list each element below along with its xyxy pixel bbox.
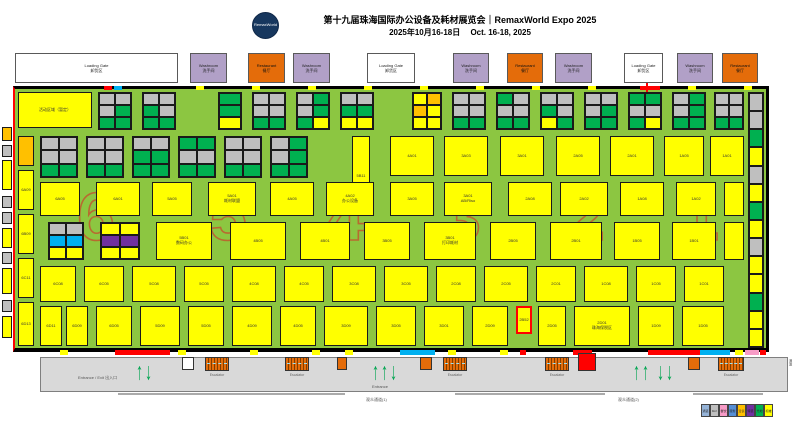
booth [724,182,744,216]
booth: 6B09 [18,214,34,254]
booth-cluster [270,136,308,178]
booth-cell [453,93,469,105]
outside-booth [2,228,12,248]
booth-cell [313,93,329,105]
booth-cell [271,150,289,163]
booth-cell [197,150,215,163]
legend-swatch: 餐饮 [719,404,728,417]
walkway-line [693,393,763,395]
booth-cell [101,235,120,247]
facility-gate: Loading Gate 卸货区 [367,53,415,83]
booth-cluster [584,92,618,130]
escalator [718,357,744,371]
facility-wash: Washroom 洗手间 [555,53,592,83]
booth-cell [715,117,729,129]
booth-cell [601,117,617,129]
booth: 3D09 [324,306,368,346]
booth-cell [87,137,105,150]
escalator-label: Escalator [537,373,577,377]
outside-booth [2,316,12,338]
booth: 1A01 [710,136,744,176]
booth: 3A03 [444,136,488,176]
entrance-arrow-u: ↑ [372,359,379,383]
booth-cell [49,235,66,247]
walkway-line [455,393,605,395]
entrance-arrow-u: ↑ [136,359,143,383]
booth-cell [749,93,763,111]
booth-cell [243,137,261,150]
booth: 6C05 [84,266,124,302]
booth-cell [41,150,59,163]
booth: 6A01 [96,182,140,216]
wall-segment [745,350,759,355]
booth-cell [413,105,427,117]
expo-logo: RemaxWorld [252,12,279,39]
booth: 1D05 [682,306,724,346]
booth-cell [87,150,105,163]
outside-booth [2,300,12,312]
legend-swatch: 光地 [755,404,764,417]
booth: 6A05 [40,182,80,216]
booth-cell [749,293,763,311]
wall-segment [700,350,730,355]
booth-cell [99,105,115,117]
booth-cell [645,105,661,117]
booth-cell [357,93,373,105]
booth: 2B01 [550,222,602,260]
booth-cell [151,150,169,163]
booth-cell [729,105,743,117]
booth-cell [197,164,215,177]
wall-segment [532,86,540,90]
entrance-arrow-d: ↓ [145,359,152,383]
booth-cell [159,105,175,117]
facility-rest: Restaurant 餐厅 [722,53,758,83]
booth-cluster [714,92,744,130]
booth-cell [341,117,357,129]
booth-cell [557,93,573,105]
wall-segment [448,350,456,355]
booth: 6D09 [66,306,88,346]
booth-cell [66,235,83,247]
booth: 4C08 [232,266,276,302]
booth: 4B01 [300,222,350,260]
entrance-arrow-d: ↓ [657,359,664,383]
booth: 2A08 [508,182,552,216]
booth-cell [629,117,645,129]
booth-cluster [340,92,374,130]
floorplan-canvas: RemaxWorld 第十九届珠海国际办公设备及耗材展览会｜RemaxWorld… [0,0,800,435]
booth-cell [297,117,313,129]
wall-segment [178,350,186,355]
booth-cluster [496,92,530,130]
booth-cell [143,105,159,117]
booth: 活动区域（暂定） [18,92,92,128]
booth: 4B05 [230,222,286,260]
service-box [337,357,347,370]
booth: 3B05 [364,222,410,260]
booth-cell [219,105,241,117]
booth: 2A01 [610,136,654,176]
facility-rest: Restaurant 餐厅 [248,53,285,83]
wall-segment [500,350,508,355]
facility-wash: Washroom 洗手间 [453,53,489,83]
booth: 3A01 AB/Riso [444,182,492,216]
wall-segment [420,86,428,90]
booth-cell [225,150,243,163]
booth-cell [427,93,441,105]
booth: 4A02 办公设备 [326,182,374,216]
booth-cell [413,93,427,105]
booth-cell [673,117,689,129]
outside-booth [2,145,12,157]
booth-cell [541,93,557,105]
booth-cell [749,220,763,238]
service-box-white [182,357,194,370]
booth: 2D09 [472,306,508,346]
booth-cell [49,247,66,259]
booth-cell [115,93,131,105]
entrance-label: Entrance [372,384,388,389]
booth-cell [557,117,573,129]
booth: 2D05 [538,306,566,346]
booth-cell [133,150,151,163]
booth: 6C08 [40,266,76,302]
outside-booth [2,212,12,224]
booth-cell [179,164,197,177]
service-box [688,357,700,370]
booth: 3A01 [500,136,544,176]
booth: 3C08 [332,266,376,302]
booth-cell [133,164,151,177]
booth-cell [271,164,289,177]
booth-cell [269,93,285,105]
wall-segment [735,350,743,355]
side-passage-label: 通道 [789,359,794,366]
booth-cluster [98,92,132,130]
escalator [545,357,569,371]
booth-cluster [48,222,84,260]
booth: 1D09 [638,306,674,346]
entrance-arrow-u: ↑ [633,359,640,383]
booth: 4A01 [390,136,434,176]
wall-segment [476,86,484,90]
booth-cluster [224,136,262,178]
wall-segment [252,86,260,90]
booth-cell [749,129,763,147]
booth-cell [513,93,529,105]
booth-cell [341,93,357,105]
booth: 5A05 [152,182,192,216]
booth: 2C08 [436,266,476,302]
wall-segment [688,86,696,90]
booth-cell [689,93,705,105]
booth-cell [297,93,313,105]
booth-cell [427,105,441,117]
booth-cell [271,137,289,150]
booth-cell [749,166,763,184]
booth: 5C05 [184,266,224,302]
booth-cell [159,93,175,105]
booth: 4D09 [232,306,272,346]
escalator-label: Escalator [197,373,237,377]
outside-booth [2,160,12,190]
booth-cell [629,93,645,105]
escalator [285,357,309,371]
booth-cell [629,105,645,117]
booth: 3C05 [384,266,428,302]
booth-cell [469,93,485,105]
booth-cell [313,117,329,129]
booth-cell [557,105,573,117]
passage1-label: 观众通道(1) [366,397,387,403]
booth-cell [179,137,197,150]
concourse [40,357,788,392]
booth-cell [749,111,763,129]
booth: 5D09 [140,306,180,346]
booth-cell [115,105,131,117]
legend-swatch: 特装 [746,404,755,417]
booth: 2A02 [560,182,608,216]
booth-cell [99,93,115,105]
wall-segment [115,350,170,355]
booth: 1A05 [664,136,704,176]
facility-gate: Loading Gate 卸货区 [624,53,663,83]
wall-segment [104,86,112,90]
booth-cell [673,105,689,117]
escalator-label: Escalator [710,373,752,377]
booth-cell [497,105,513,117]
booth: 2D01 珠海保税区 [574,306,630,346]
booth-cell [133,137,151,150]
booth [724,222,744,260]
booth-cell [105,137,123,150]
booth-cluster [100,222,140,260]
entrance-arrow-u: ↑ [381,359,388,383]
expo-title: 第十九届珠海国际办公设备及耗材展览会｜RemaxWorld Expo 2025 [285,13,635,26]
booth-cell [749,311,763,329]
wall-segment [312,350,320,355]
booth: 1B01 [672,222,716,260]
booth: 1C08 [584,266,628,302]
booth-cell [59,150,77,163]
booth-cluster [412,92,442,130]
booth: 6D05 [96,306,132,346]
escalator-label: Escalator [277,373,317,377]
booth-cluster [296,92,330,130]
booth: 6D13 [18,302,34,346]
booth-cell [179,150,197,163]
booth-cell [413,117,427,129]
facility-wash: Washroom 洗手间 [190,53,227,83]
booth-cell [497,117,513,129]
booth-cluster [40,136,78,178]
booth-cell [225,137,243,150]
wall-segment [744,86,752,90]
booth-cell [585,105,601,117]
booth-cell [151,164,169,177]
booth: 2A05 [556,136,600,176]
booth-cell [101,247,120,259]
booth-cluster [748,92,764,348]
booth-cell [269,105,285,117]
booth-cell [341,105,357,117]
booth-cluster [178,136,216,178]
facility-wash: Washroom 洗手间 [293,53,330,83]
booth-cell [49,223,66,235]
booth-cell [357,105,373,117]
walkway-line [118,393,345,395]
wall-segment [760,350,766,355]
legend-swatch: 标摊 [764,404,773,417]
booth: 2C01 [536,266,576,302]
escalator-label: Escalator [435,373,475,377]
outside-booth [2,196,12,208]
escalator [443,357,467,371]
booth-cell [749,184,763,202]
booth-cluster [218,92,242,130]
booth-cell [120,247,139,259]
passage2-label: 观众通道(2) [618,397,639,403]
booth-cell [66,247,83,259]
booth-cell [497,93,513,105]
booth: 5D05 [188,306,224,346]
booth-cell [159,117,175,129]
booth-cell [585,93,601,105]
booth-cell [729,93,743,105]
booth-cell [749,329,763,347]
wall-segment [345,350,353,355]
entrance-exit-label: Entrance / Exit 出入口 [78,375,117,381]
booth: 5C08 [132,266,176,302]
booth-cell [105,164,123,177]
booth-cluster [86,136,124,178]
booth-cell [41,164,59,177]
booth-cluster [628,92,662,130]
booth-cell [749,256,763,274]
booth-cell [219,117,241,129]
booth-cell [689,105,705,117]
booth-cell [673,93,689,105]
wall-segment [308,86,316,90]
booth-cell [513,117,529,129]
booth-cell [269,117,285,129]
booth-cell [99,117,115,129]
booth-cell [453,117,469,129]
booth-cell [601,105,617,117]
booth-cell [729,117,743,129]
entrance-arrow-d: ↓ [666,359,673,383]
booth-cluster [540,92,574,130]
booth-cell [151,137,169,150]
booth-cell [143,117,159,129]
outside-booth [2,268,12,294]
entrance-arrow-u: ↑ [642,359,649,383]
booth-cell [541,117,557,129]
booth-cluster [132,136,170,178]
booth-cell [749,274,763,292]
outside-booth [2,252,12,264]
booth [18,136,34,166]
booth: 1C01 [684,266,724,302]
wall-segment [60,350,68,355]
booth-cell [105,150,123,163]
booth-cell [66,223,83,235]
booth-cell [601,93,617,105]
booth: 3A05 [390,182,434,216]
wall-segment [640,86,660,90]
legend-swatch: 洽谈 [737,404,746,417]
booth-cell [243,164,261,177]
booth-cell [253,93,269,105]
service-box [420,357,432,370]
booth: 1A02 [676,182,716,216]
booth-cell [689,117,705,129]
booth: 3B01 打印耗材 [424,222,476,260]
booth: 4D05 [280,306,316,346]
booth: 1B05 [614,222,660,260]
wall-segment [400,350,435,355]
booth-cell [749,238,763,256]
booth-cell [469,105,485,117]
booth-cell [427,117,441,129]
booth: 1C05 [636,266,676,302]
booth-cluster [672,92,706,130]
booth: 3D05 [376,306,416,346]
booth-cell [513,105,529,117]
booth-cell [541,105,557,117]
booth-cluster [252,92,286,130]
booth: 5B01 数码办公 [156,222,212,260]
booth-cell [749,147,763,165]
wall-segment [196,86,204,90]
booth-cell [120,235,139,247]
booth-cell [453,105,469,117]
facility-rest: Restaurant 餐厅 [507,53,543,83]
booth-cell [253,117,269,129]
booth-cell [289,150,307,163]
booth: 2B05 [490,222,536,260]
wall-segment [364,86,372,90]
booth-cell [243,150,261,163]
highlighted-booth: 2B52 [516,306,532,334]
booth-cell [225,164,243,177]
booth-cell [585,117,601,129]
legend-swatch: 服务 [728,404,737,417]
booth: 4A05 [270,182,314,216]
booth: 1A08 [620,182,664,216]
booth-cell [41,137,59,150]
booth-cell [197,137,215,150]
booth-cell [469,117,485,129]
booth-cluster [142,92,176,130]
booth-cell [115,117,131,129]
booth: 4C05 [284,266,324,302]
booth-cluster [452,92,486,130]
entrance-gate-box [578,353,596,371]
wall-segment [588,86,596,90]
booth-cell [645,117,661,129]
booth-cell [645,93,661,105]
wall-segment [250,350,258,355]
booth-cell [120,223,139,235]
wall-segment [114,86,122,90]
escalator [205,357,229,371]
wall-segment [648,350,700,355]
booth-cell [357,117,373,129]
booth: 6A09 [18,170,34,210]
booth-cell [715,105,729,117]
